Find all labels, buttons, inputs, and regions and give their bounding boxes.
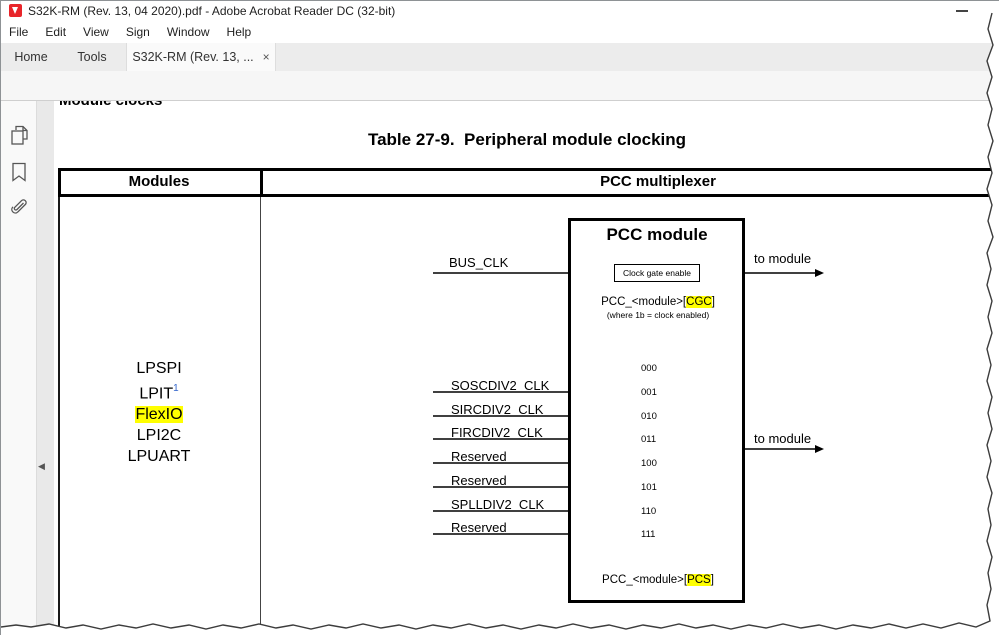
main-toolbar: 568 / 2179 150%: [1, 71, 999, 101]
mux-input-label: SOSCDIV2_CLK: [451, 378, 549, 393]
page-content: Module clocks Table 27-9. Peripheral mod…: [54, 101, 999, 629]
collapse-pane-icon[interactable]: ◀: [38, 461, 45, 472]
cgc-register-label: PCC_<module>[CGC]: [601, 296, 715, 308]
mux-code: 011: [641, 434, 656, 445]
mux-input-label: SIRCDIV2_CLK: [451, 402, 543, 417]
tab-document-label: S32K-RM (Rev. 13, ...: [132, 50, 253, 64]
mux-input-label: Reserved: [451, 520, 507, 535]
menu-edit[interactable]: Edit: [45, 25, 66, 39]
navigation-sidebar: [1, 101, 37, 636]
menu-view[interactable]: View: [83, 25, 109, 39]
page-thumbnails-icon[interactable]: [10, 125, 29, 146]
bookmarks-icon[interactable]: [11, 162, 27, 182]
acrobat-window: S32K-RM (Rev. 13, 04 2020).pdf - Adobe A…: [0, 0, 999, 635]
menu-help[interactable]: Help: [227, 25, 252, 39]
mux-code: 110: [641, 506, 656, 517]
window-title: S32K-RM (Rev. 13, 04 2020).pdf - Adobe A…: [28, 4, 395, 18]
menu-bar: File Edit View Sign Window Help: [1, 21, 999, 43]
pcc-module-title: PCC module: [606, 225, 707, 245]
mux-input-label: SPLLDIV2_CLK: [451, 497, 544, 512]
mux-code: 000: [641, 363, 657, 374]
menu-sign[interactable]: Sign: [126, 25, 150, 39]
tab-tools[interactable]: Tools: [61, 43, 123, 71]
pcc-diagram-lines: [54, 101, 999, 629]
clock-gate-enable-box: Clock gate enable: [614, 264, 700, 282]
mux-code: 010: [641, 411, 657, 422]
close-tab-icon[interactable]: ×: [263, 50, 270, 64]
minimize-icon[interactable]: [956, 10, 968, 12]
mux-code: 001: [641, 387, 657, 398]
mux-input-label: Reserved: [451, 473, 507, 488]
mux-input-label: Reserved: [451, 449, 507, 464]
to-module-label-bottom: to module: [754, 431, 811, 446]
tab-document[interactable]: S32K-RM (Rev. 13, ... ×: [126, 43, 276, 71]
mux-code: 101: [641, 482, 657, 493]
to-module-label-top: to module: [754, 251, 811, 266]
mux-input-label: FIRCDIV2_CLK: [451, 425, 543, 440]
title-bar: S32K-RM (Rev. 13, 04 2020).pdf - Adobe A…: [1, 1, 999, 21]
menu-window[interactable]: Window: [167, 25, 210, 39]
pcs-register-label: PCC_<module>[PCS]: [602, 574, 714, 586]
mux-code: 100: [641, 458, 657, 469]
tab-bar: Home Tools S32K-RM (Rev. 13, ... ×: [1, 43, 999, 71]
attachments-icon[interactable]: [10, 198, 29, 218]
cgc-note: (where 1b = clock enabled): [607, 310, 709, 320]
bus-clk-label: BUS_CLK: [449, 255, 508, 270]
tab-home[interactable]: Home: [1, 43, 61, 71]
adobe-pdf-logo-icon: [9, 4, 22, 17]
menu-file[interactable]: File: [9, 25, 28, 39]
mux-code: 111: [641, 529, 655, 540]
